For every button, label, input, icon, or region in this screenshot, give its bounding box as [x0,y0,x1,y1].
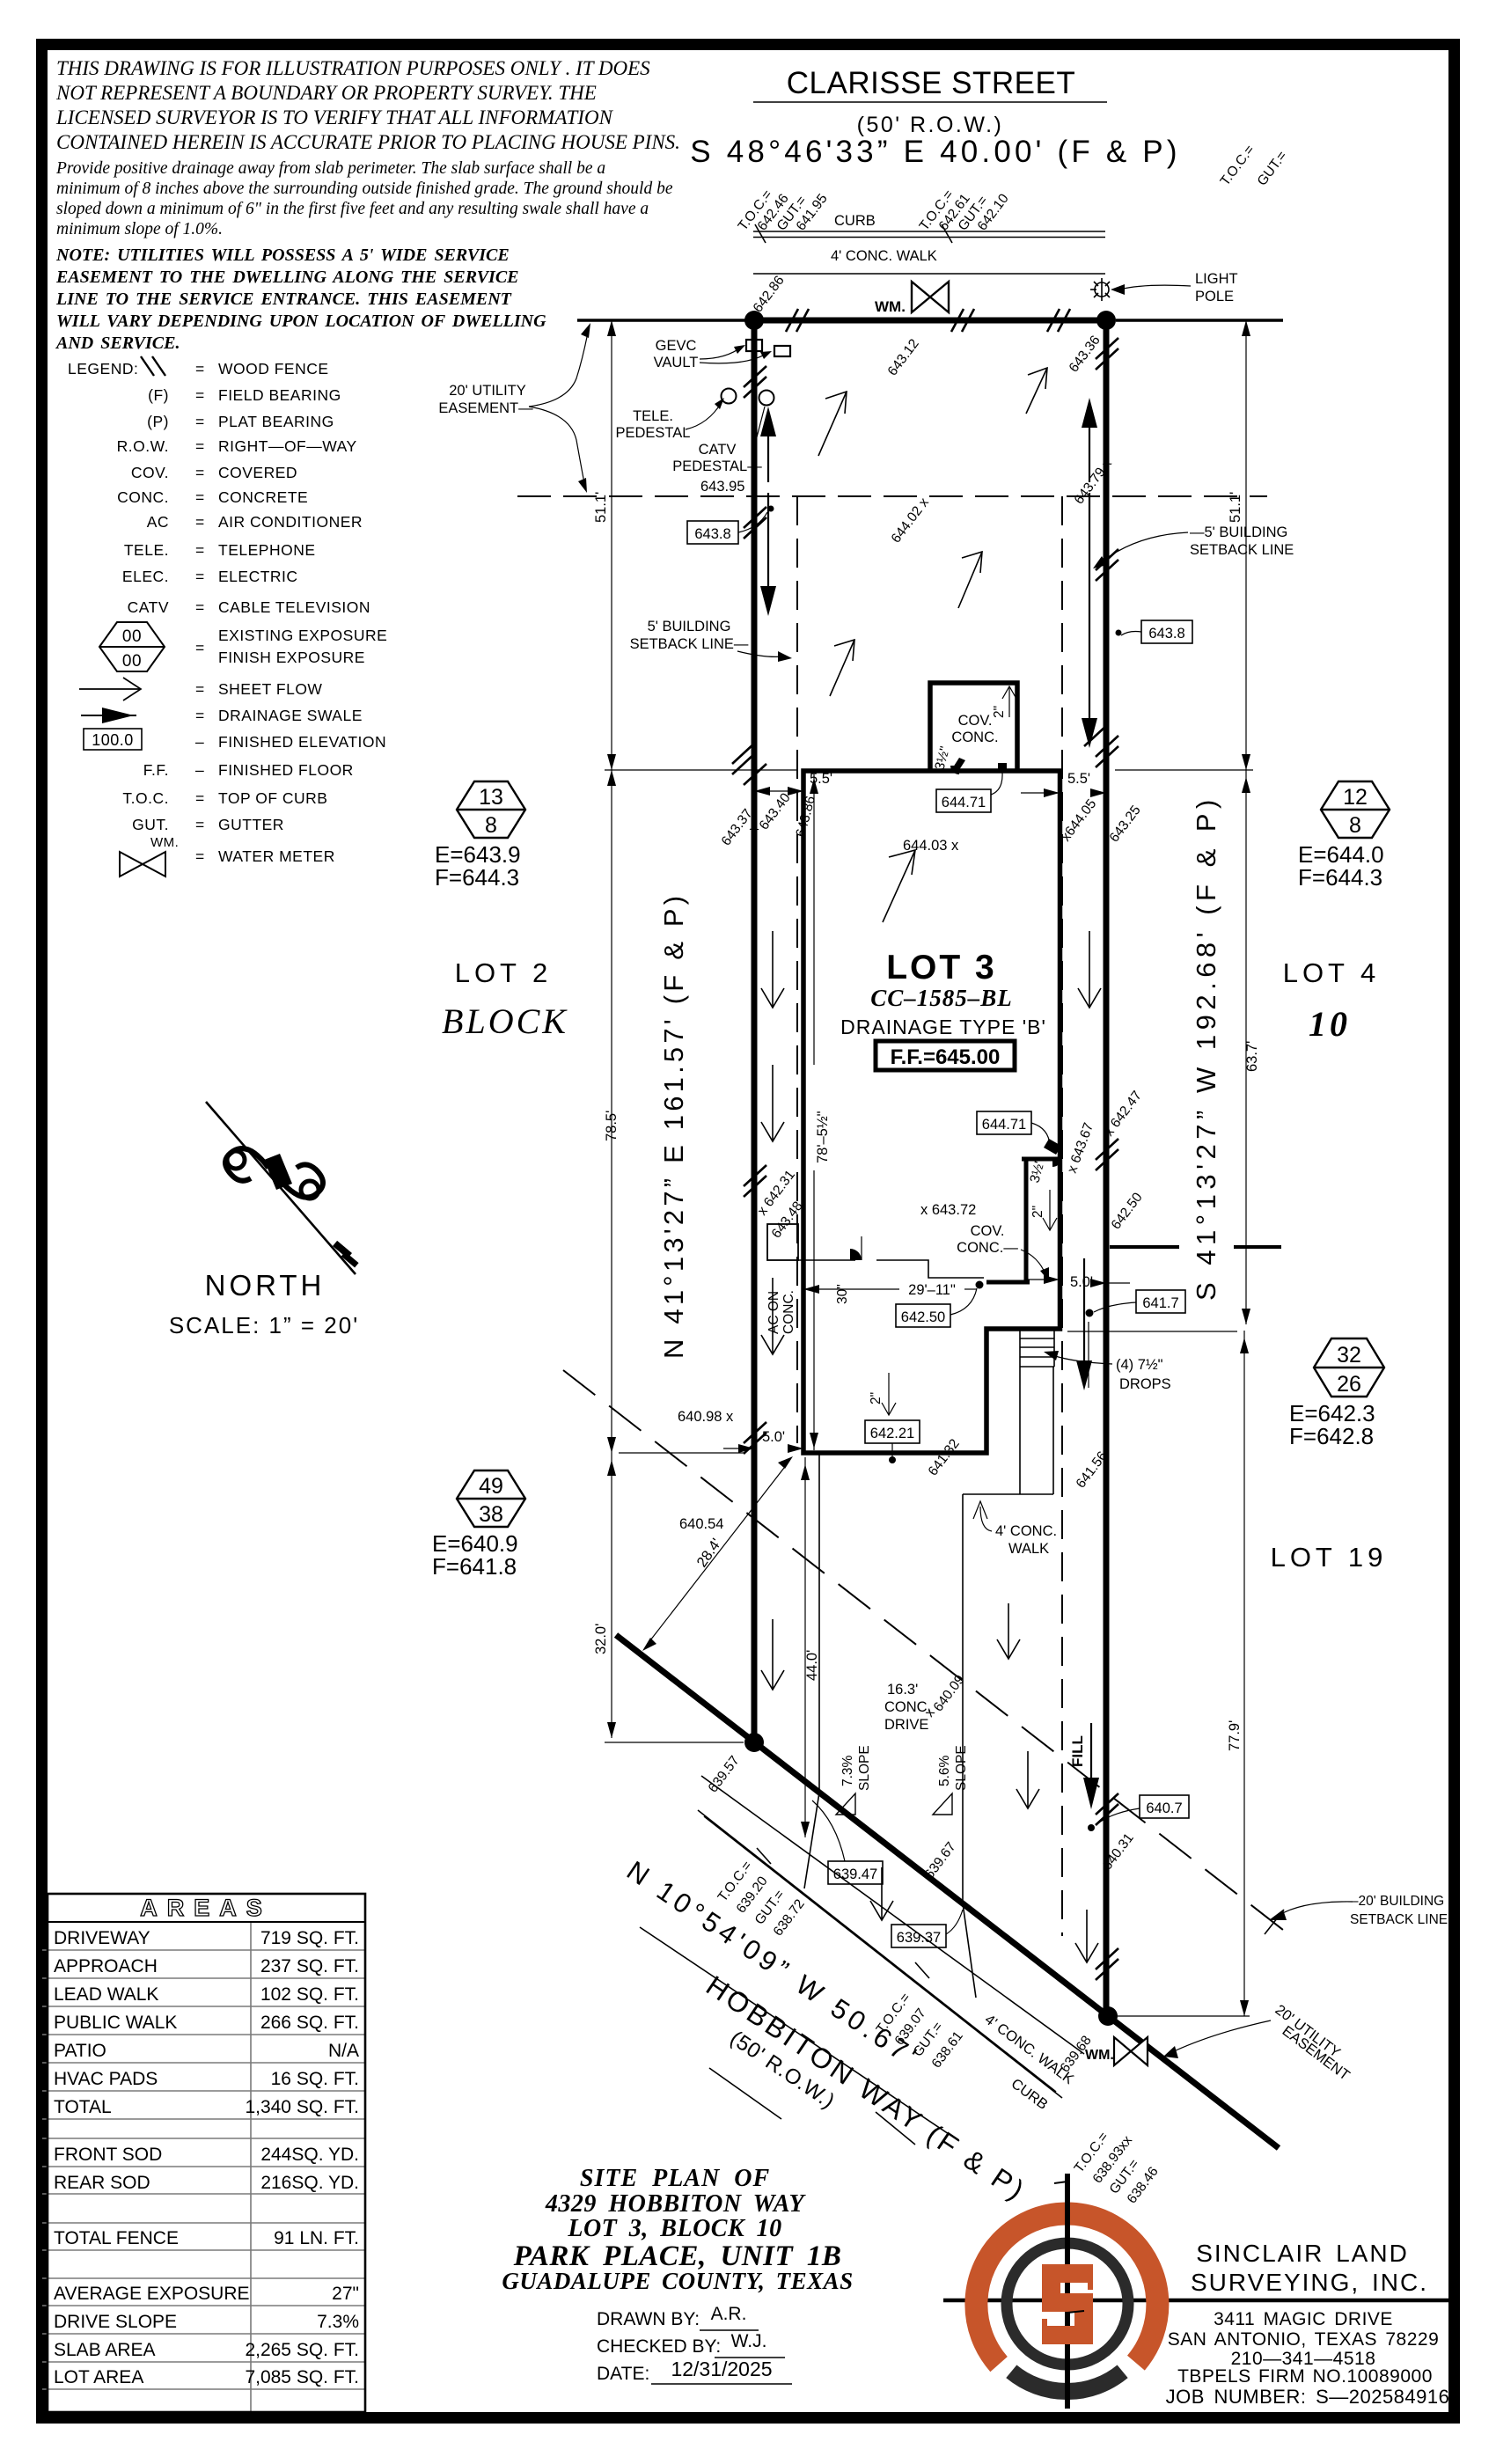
svg-text:266 SQ. FT.: 266 SQ. FT. [260,2013,359,2033]
svg-text:2": 2" [1030,1206,1045,1218]
svg-text:LICENSED SURVEYOR IS TO VERIFY: LICENSED SURVEYOR IS TO VERIFY THAT ALL … [55,106,614,128]
svg-text:SINCLAIR LAND: SINCLAIR LAND [1196,2240,1409,2267]
svg-text:GUT.: GUT. [132,816,169,833]
svg-text:FINISHED FLOOR: FINISHED FLOOR [218,761,354,779]
svg-text:NORTH: NORTH [205,1269,326,1302]
svg-text:CONC.: CONC. [951,730,998,745]
svg-text:—20' BUILDING: —20' BUILDING [1345,1894,1444,1909]
svg-text:EASEMENT—: EASEMENT— [438,400,533,416]
svg-text:16.3': 16.3' [887,1682,918,1698]
svg-text:Provide positive drainage away: Provide positive drainage away from slab… [55,159,605,178]
svg-text:RIGHT—OF—WAY: RIGHT—OF—WAY [218,437,357,455]
svg-text:SCALE: 1” = 20': SCALE: 1” = 20' [169,1312,359,1338]
svg-text:R.O.W.: R.O.W. [117,437,169,455]
svg-text:COV.: COV. [958,713,993,729]
svg-text:20' UTILITY: 20' UTILITY [449,383,526,399]
svg-text:CONC.—: CONC.— [957,1240,1018,1256]
svg-text:LOT 3: LOT 3 [886,949,997,986]
svg-text:102 SQ. FT.: 102 SQ. FT. [260,1984,359,2005]
svg-text:=: = [195,816,205,833]
svg-text:10: 10 [1309,1004,1351,1044]
svg-text:S 41°13'27” W 192.68' (F & P): S 41°13'27” W 192.68' (F & P) [1191,795,1221,1301]
svg-text:DRIVEWAY: DRIVEWAY [54,1928,150,1948]
svg-text:FILL: FILL [1069,1735,1086,1767]
svg-text:640.54: 640.54 [679,1516,723,1532]
svg-text:T.O.C.: T.O.C. [122,789,169,807]
svg-text:TELE.: TELE. [633,408,673,424]
svg-text:EASEMENT TO THE DWELLING ALONG: EASEMENT TO THE DWELLING ALONG THE SERVI… [55,268,519,287]
svg-text:REAR SOD: REAR SOD [54,2173,150,2193]
svg-text:SAN ANTONIO, TEXAS 78229: SAN ANTONIO, TEXAS 78229 [1168,2329,1440,2350]
svg-text:F=642.8: F=642.8 [1289,1423,1374,1449]
svg-text:COV.: COV. [971,1223,1005,1239]
svg-text:244SQ. YD.: 244SQ. YD. [260,2145,359,2165]
svg-text:4' CONC. WALK: 4' CONC. WALK [831,248,937,264]
svg-text:CURB: CURB [834,213,876,229]
svg-text:13: 13 [479,785,503,810]
svg-text:(4) 7½": (4) 7½" [1116,1357,1163,1373]
svg-text:F=644.3: F=644.3 [435,864,519,891]
svg-text:DROPS: DROPS [1119,1376,1171,1392]
svg-text:GUTTER: GUTTER [218,816,284,833]
svg-text:5.6%: 5.6% [937,1755,952,1786]
svg-text:SURVEYING, INC.: SURVEYING, INC. [1191,2269,1428,2296]
svg-text:=: = [195,513,205,531]
svg-text:51.1': 51.1' [1228,492,1243,523]
svg-text:644.71: 644.71 [982,1117,1026,1133]
svg-text:CONCRETE: CONCRETE [218,488,308,506]
svg-text:7,085 SQ. FT.: 7,085 SQ. FT. [245,2367,359,2387]
svg-text:ELEC.: ELEC. [122,568,169,585]
svg-text:NOT REPRESENT A BOUNDARY OR PR: NOT REPRESENT A BOUNDARY OR PROPERTY SUR… [55,82,597,104]
svg-text:PUBLIC WALK: PUBLIC WALK [54,2013,177,2033]
svg-text:COVERED: COVERED [218,464,297,481]
svg-text:100.0: 100.0 [92,731,134,749]
svg-text:7.3%: 7.3% [840,1755,855,1786]
svg-text:5' BUILDING: 5' BUILDING [648,619,731,634]
svg-text:77.9': 77.9' [1227,1720,1243,1751]
svg-text:F.F.=645.00: F.F.=645.00 [891,1045,1001,1069]
svg-text:3411 MAGIC DRIVE: 3411 MAGIC DRIVE [1214,2309,1393,2329]
svg-text:SETBACK LINE: SETBACK LINE [1350,1912,1448,1927]
svg-text:WM.: WM. [1085,2048,1114,2063]
svg-text:N 41°13'27” E 161.57' (F & P): N 41°13'27” E 161.57' (F & P) [658,892,689,1359]
svg-text:(P): (P) [147,413,169,430]
svg-text:CONTAINED HEREIN IS ACCURATE P: CONTAINED HEREIN IS ACCURATE PRIOR TO PL… [56,131,680,153]
svg-text:SLOPE: SLOPE [954,1745,969,1791]
svg-text:=: = [195,789,205,807]
svg-text:N/A: N/A [328,2041,359,2061]
svg-text:237 SQ. FT.: 237 SQ. FT. [260,1956,359,1976]
svg-text:LOT 4: LOT 4 [1283,957,1381,988]
svg-text:=: = [195,639,205,656]
svg-text:WM.: WM. [150,835,179,850]
svg-text:CHECKED BY:: CHECKED BY: [597,2336,721,2357]
svg-text:LEGEND:: LEGEND: [68,360,138,378]
svg-text:BLOCK: BLOCK [442,1001,568,1041]
svg-text:x 643.72: x 643.72 [920,1202,976,1218]
svg-text:AC: AC [147,513,169,531]
svg-text:16 SQ. FT.: 16 SQ. FT. [271,2069,359,2089]
svg-text:W.J.: W.J. [731,2331,767,2351]
svg-text:30": 30" [835,1284,850,1304]
svg-text:5.5': 5.5' [1067,771,1090,787]
svg-text:TBPELS FIRM NO.10089000: TBPELS FIRM NO.10089000 [1177,2366,1433,2387]
svg-text:CONC.: CONC. [781,1290,796,1334]
svg-text:S 48°46'33” E 40.00' (F &: S 48°46'33” E 40.00' (F & P) [690,135,1180,169]
svg-text:AREAS: AREAS [140,1895,272,1921]
svg-text:=: = [195,847,205,865]
svg-text:AND SERVICE.: AND SERVICE. [55,334,180,353]
svg-text:5.0': 5.0' [1070,1274,1093,1290]
svg-text:LEAD WALK: LEAD WALK [54,1984,158,2005]
svg-text:JOB NUMBER: S—202584916: JOB NUMBER: S—202584916 [1166,2386,1450,2408]
svg-text:SITE PLAN OF: SITE PLAN OF [580,2165,770,2192]
svg-text:PATIO: PATIO [54,2041,106,2061]
svg-text:AC ON: AC ON [766,1291,781,1334]
svg-text:12/31/2025: 12/31/2025 [671,2358,772,2380]
svg-text:=: = [195,360,205,378]
svg-text:7.3%: 7.3% [317,2312,359,2332]
svg-text:641.7: 641.7 [1142,1295,1178,1311]
svg-text:78.5': 78.5' [604,1111,620,1141]
svg-text:SLAB AREA: SLAB AREA [54,2340,156,2360]
svg-text:COV.: COV. [131,464,169,481]
svg-text:642.21: 642.21 [870,1426,914,1441]
svg-text:FINISH EXPOSURE: FINISH EXPOSURE [218,649,365,666]
svg-text:DATE:: DATE: [597,2364,649,2384]
svg-text:643.95: 643.95 [700,479,744,495]
svg-text:DRAINAGE SWALE: DRAINAGE SWALE [218,707,363,724]
svg-text:CATV: CATV [699,442,737,458]
svg-text:(50' R.O.W.): (50' R.O.W.) [857,113,1004,137]
svg-text:=: = [195,541,205,559]
svg-text:THIS DRAWING IS FOR ILLUSTRATI: THIS DRAWING IS FOR ILLUSTRATION PURPOSE… [56,57,650,79]
svg-text:49: 49 [479,1474,503,1499]
svg-text:=: = [195,464,205,481]
svg-text:38: 38 [479,1502,503,1527]
svg-text:719 SQ. FT.: 719 SQ. FT. [260,1928,359,1948]
svg-text:AVERAGE EXPOSURE: AVERAGE EXPOSURE [54,2284,250,2304]
svg-text:CATV: CATV [128,598,169,616]
svg-text:4' CONC.: 4' CONC. [995,1523,1057,1539]
svg-text:PEDESTAL—: PEDESTAL— [672,458,762,474]
svg-text:TOTAL: TOTAL [54,2097,112,2117]
svg-text:HVAC PADS: HVAC PADS [54,2069,158,2089]
svg-text:4329 HOBBITON WAY: 4329 HOBBITON WAY [545,2190,807,2218]
svg-text:TOTAL FENCE: TOTAL FENCE [54,2228,179,2248]
svg-text:GEVC: GEVC [656,338,697,354]
svg-text:EXISTING EXPOSURE: EXISTING EXPOSURE [218,627,387,644]
svg-text:63.7': 63.7' [1244,1041,1260,1072]
svg-text:WILL VARY DEPENDING UPON LOCAT: WILL VARY DEPENDING UPON LOCATION OF DWE… [56,312,546,331]
svg-text:DRIVE SLOPE: DRIVE SLOPE [54,2312,177,2332]
svg-text:(F): (F) [148,386,169,404]
svg-text:=: = [195,680,205,698]
svg-text:F=641.8: F=641.8 [432,1553,517,1580]
svg-text:LOT AREA: LOT AREA [54,2367,143,2387]
svg-text:=: = [195,386,205,404]
svg-text:DRIVE: DRIVE [884,1717,928,1733]
svg-text:51.1': 51.1' [593,492,609,523]
svg-text:00: 00 [122,652,142,671]
svg-text:PEDESTAL: PEDESTAL [616,425,691,441]
svg-text:2": 2" [869,1392,884,1404]
svg-text:LOT 3, BLOCK 10: LOT 3, BLOCK 10 [567,2215,781,2242]
svg-text:APPROACH: APPROACH [54,1956,158,1976]
svg-text:643.8: 643.8 [1148,626,1184,642]
svg-text:644.71: 644.71 [942,795,986,810]
svg-text:sloped down a minimum of 6" in: sloped down a minimum of 6" in the first… [56,200,649,218]
svg-text:DRAINAGE TYPE 'B': DRAINAGE TYPE 'B' [840,1016,1046,1038]
svg-text:26: 26 [1337,1372,1361,1397]
svg-text:32: 32 [1337,1343,1361,1368]
svg-text:F=644.3: F=644.3 [1298,864,1382,891]
svg-text:NOTE: UTILITIES WILL POSSESS A: NOTE: UTILITIES WILL POSSESS A 5' WIDE S… [55,246,510,265]
svg-text:2": 2" [992,706,1007,718]
svg-text:32.0': 32.0' [593,1624,609,1654]
svg-text:WM.: WM. [875,298,906,315]
svg-text:27": 27" [332,2284,359,2304]
svg-text:640.7: 640.7 [1146,1800,1182,1816]
svg-text:TELE.: TELE. [124,541,169,559]
svg-text:VAULT: VAULT [654,355,699,370]
svg-text:CC–1585–BL: CC–1585–BL [870,985,1013,1011]
svg-text:SETBACK LINE—: SETBACK LINE— [630,636,749,652]
svg-text:8: 8 [1349,813,1361,838]
svg-text:LOT 2: LOT 2 [455,957,553,988]
svg-text:639.47: 639.47 [833,1866,877,1882]
svg-text:AIR CONDITIONER: AIR CONDITIONER [218,513,363,531]
svg-text:639.37: 639.37 [897,1930,941,1946]
svg-text:CONC.: CONC. [117,488,169,506]
svg-text:FRONT SOD: FRONT SOD [54,2145,162,2165]
svg-text:—5' BUILDING: —5' BUILDING [1190,524,1287,540]
svg-text:640.98 x: 640.98 x [678,1409,734,1425]
svg-text:GUADALUPE COUNTY, TEXAS: GUADALUPE COUNTY, TEXAS [502,2268,853,2294]
svg-text:A.R.: A.R. [711,2304,747,2324]
svg-text:LINE TO THE SERVICE ENTRANCE.: LINE TO THE SERVICE ENTRANCE. THIS EASEM… [55,290,512,309]
svg-text:216SQ. YD.: 216SQ. YD. [260,2173,359,2193]
svg-text:PLAT BEARING: PLAT BEARING [218,413,334,430]
svg-text:F.F.: F.F. [143,761,169,779]
svg-text:=: = [195,437,205,455]
svg-text:=: = [195,598,205,616]
svg-text:642.50: 642.50 [901,1309,945,1325]
svg-text:=: = [195,488,205,506]
svg-text:TOP OF CURB: TOP OF CURB [218,789,327,807]
svg-text:minimum of 8 inches above the: minimum of 8 inches above the surroundin… [56,180,673,198]
svg-text:CABLE TELEVISION: CABLE TELEVISION [218,598,370,616]
svg-text:00: 00 [122,627,142,646]
svg-text:ELECTRIC: ELECTRIC [218,568,298,585]
svg-text:LIGHT: LIGHT [1195,271,1238,287]
svg-text:WATER METER: WATER METER [218,847,335,865]
svg-text:=: = [195,707,205,724]
svg-text:CLARISSE STREET: CLARISSE STREET [787,66,1075,100]
svg-text:2,265 SQ. FT.: 2,265 SQ. FT. [245,2340,359,2360]
svg-text:POLE: POLE [1195,289,1234,304]
svg-text:=: = [195,413,205,430]
svg-text:643.8: 643.8 [694,526,730,542]
svg-text:SETBACK LINE: SETBACK LINE [1190,542,1294,558]
svg-text:1,340 SQ. FT.: 1,340 SQ. FT. [245,2097,359,2117]
svg-text:WALK: WALK [1008,1541,1049,1557]
svg-text:–: – [195,733,204,751]
svg-text:78'–5½": 78'–5½" [815,1111,831,1163]
svg-text:SLOPE: SLOPE [857,1745,872,1791]
svg-text:DRAWN BY:: DRAWN BY: [597,2309,700,2329]
svg-text:44.0': 44.0' [804,1650,820,1681]
svg-text:5.0': 5.0' [762,1429,785,1445]
svg-text:FINISHED ELEVATION: FINISHED ELEVATION [218,733,386,751]
svg-text:8: 8 [485,813,497,838]
svg-text:91 LN. FT.: 91 LN. FT. [274,2228,359,2248]
svg-text:SHEET FLOW: SHEET FLOW [218,680,322,698]
svg-text:=: = [195,568,205,585]
svg-text:WOOD FENCE: WOOD FENCE [218,360,329,378]
svg-text:minimum slope of 1.0%.: minimum slope of 1.0%. [56,220,223,238]
svg-text:29'–11": 29'–11" [908,1282,956,1298]
svg-text:–: – [195,761,204,779]
svg-text:FIELD BEARING: FIELD BEARING [218,386,341,404]
svg-text:LOT 19: LOT 19 [1271,1542,1388,1573]
svg-text:12: 12 [1343,785,1368,810]
svg-text:TELEPHONE: TELEPHONE [218,541,316,559]
